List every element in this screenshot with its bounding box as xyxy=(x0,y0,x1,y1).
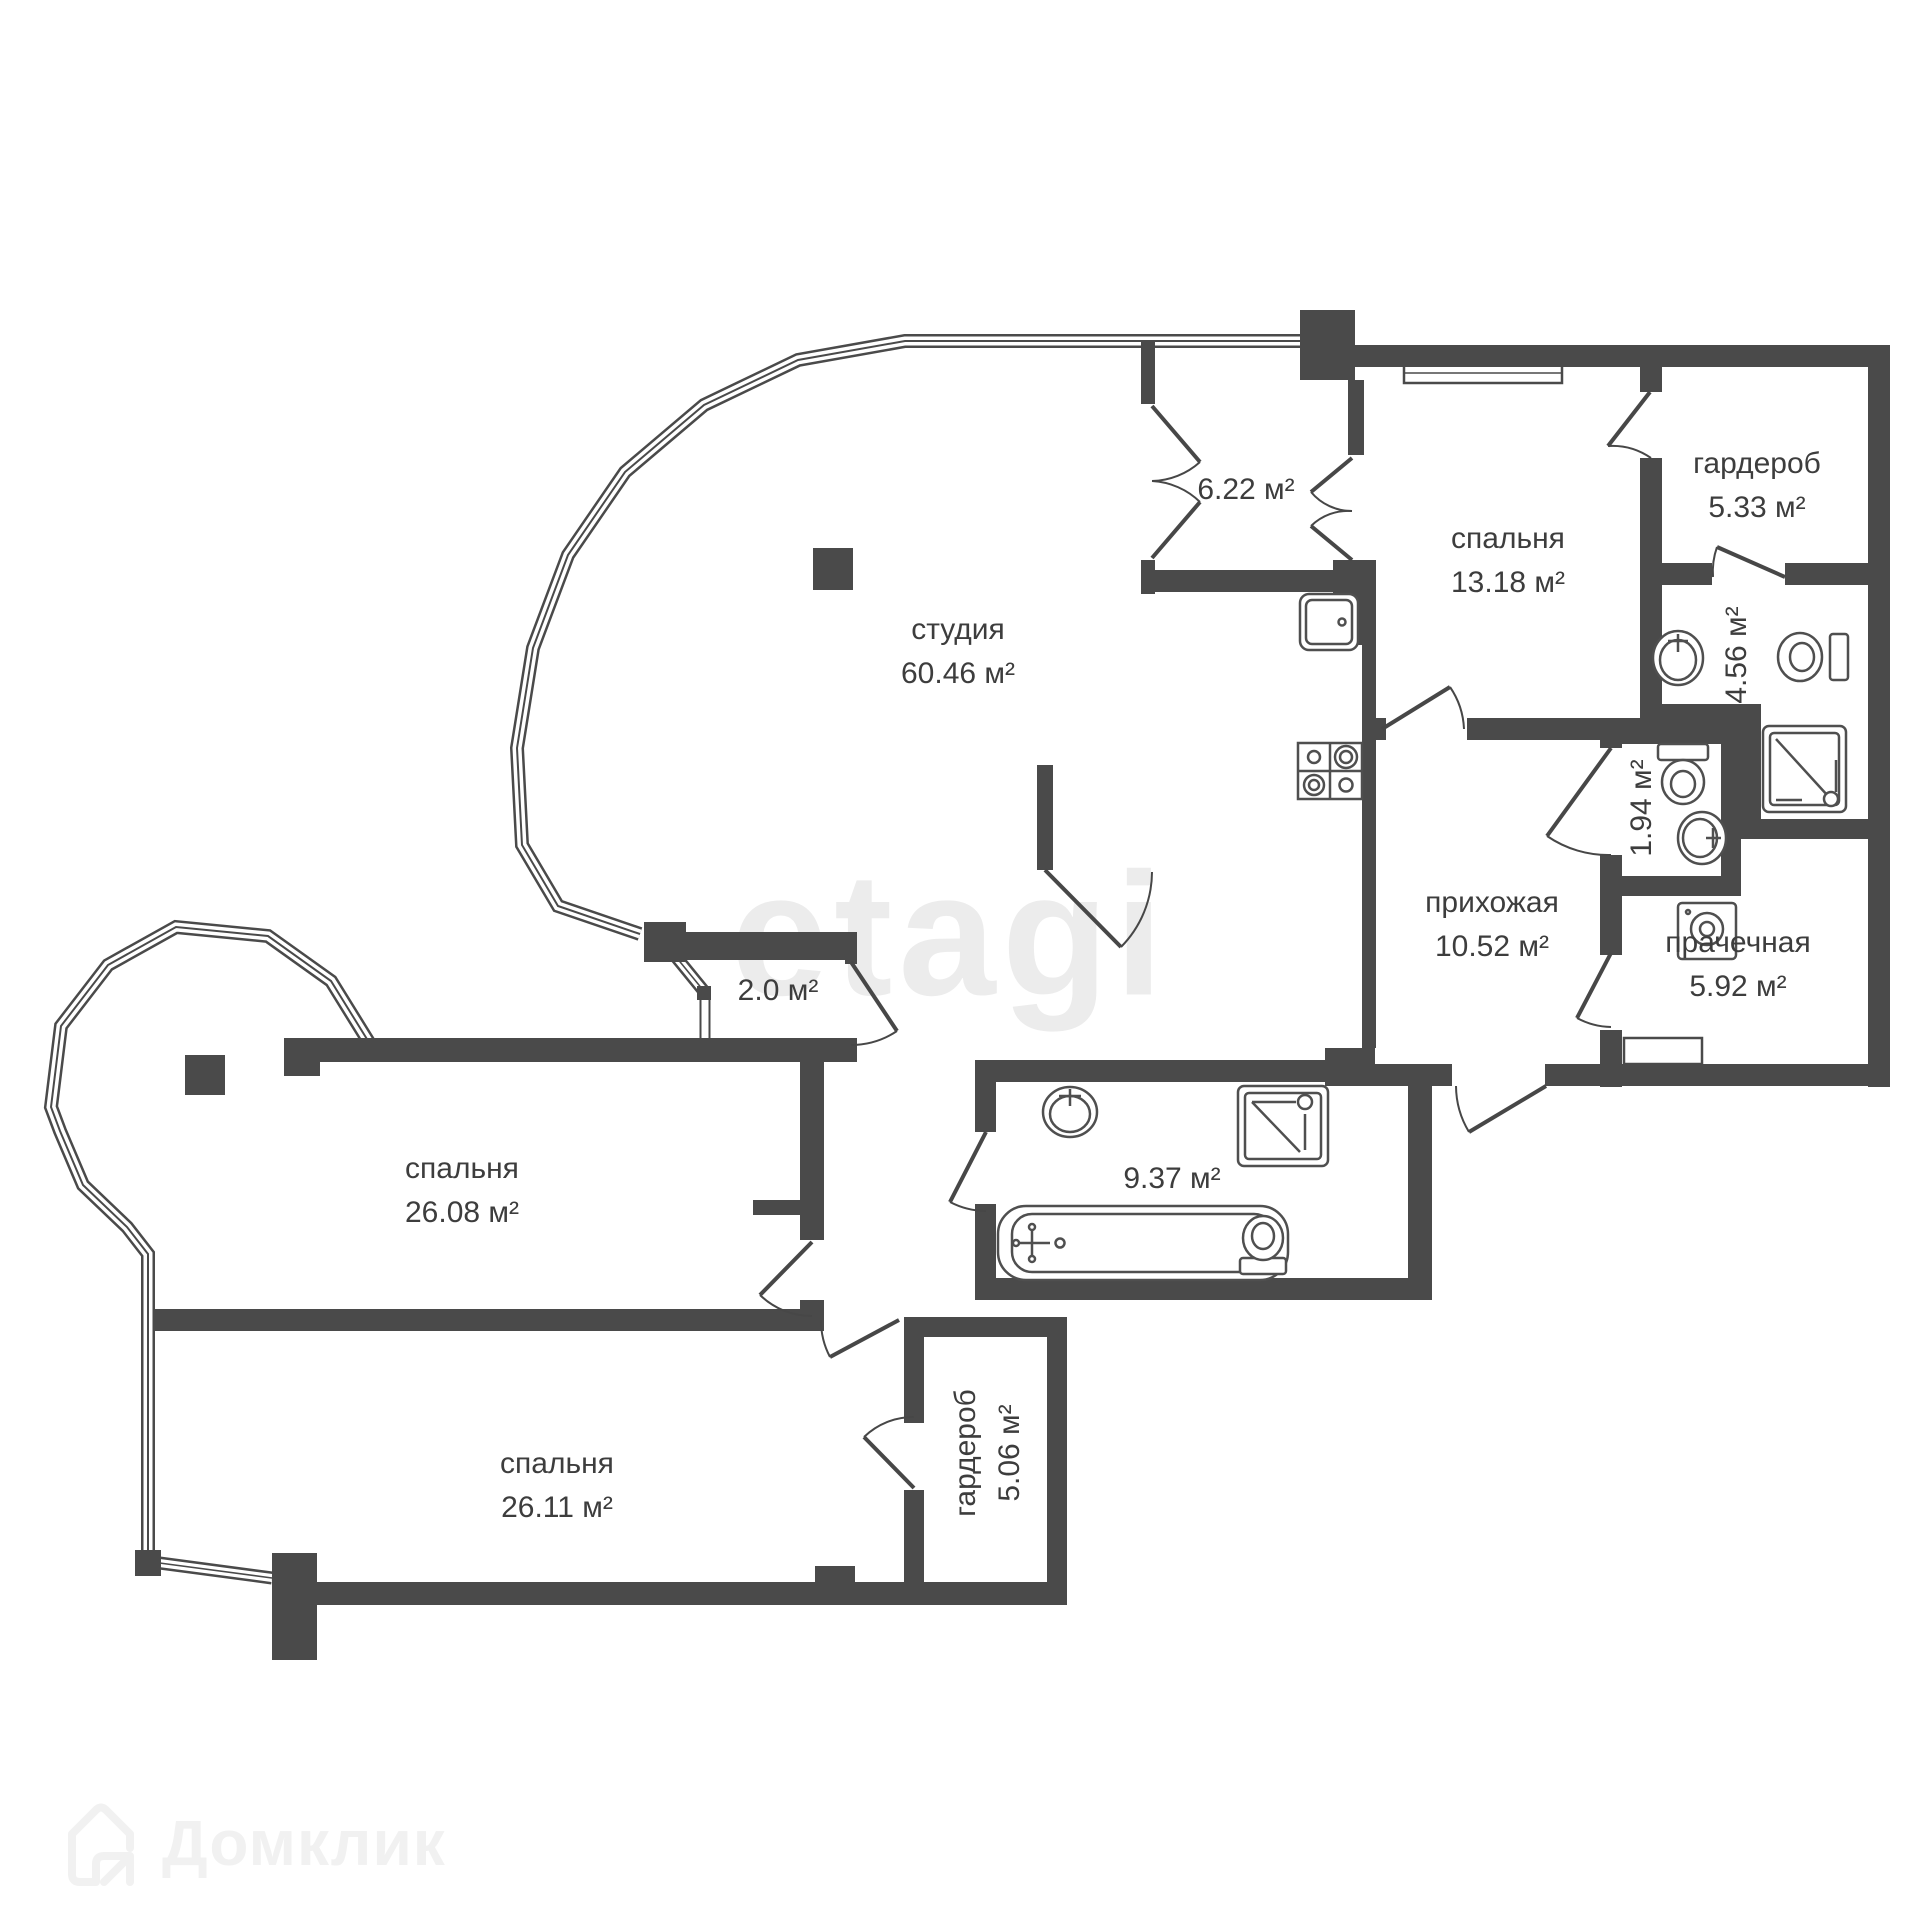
room-area: 5.06 м² xyxy=(988,1389,1032,1517)
toilet-icon xyxy=(1658,744,1708,804)
room-name: прачечная xyxy=(1665,921,1810,965)
room-area: 1.94 м² xyxy=(1620,759,1664,856)
room-area: 9.37 м² xyxy=(1123,1157,1220,1201)
room-area: 2.0 м² xyxy=(738,969,819,1013)
column-studio xyxy=(813,548,853,590)
shower-icon xyxy=(1763,726,1846,812)
door-wardrobe-bottom xyxy=(864,1417,914,1488)
door-bedroom-top-right xyxy=(1382,687,1464,729)
room-label-balcony-small: 2.0 м² xyxy=(738,969,819,1013)
door-bathroom-small xyxy=(1713,547,1785,577)
room-label-wardrobe-top: гардероб 5.33 м² xyxy=(1693,442,1821,530)
toilet-icon xyxy=(1778,633,1848,681)
room-area: 60.46 м² xyxy=(901,652,1015,696)
room-name: гардероб xyxy=(944,1389,988,1517)
bedroom-left-bay-window xyxy=(51,927,370,1578)
door-entrance xyxy=(1456,1086,1546,1132)
room-name: спальня xyxy=(405,1147,519,1191)
shower-icon xyxy=(1238,1086,1328,1166)
room-name: студия xyxy=(901,608,1015,652)
room-label-bedroom-bottom: спальня 26.11 м² xyxy=(500,1442,614,1530)
door-bedroom-bottom xyxy=(821,1320,899,1357)
room-area: 10.52 м² xyxy=(1425,925,1559,969)
washbasin-icon xyxy=(1678,812,1726,864)
kitchen-sink-icon xyxy=(1300,594,1358,650)
domclick-logo: Домклик xyxy=(58,1798,446,1888)
room-label-bedroom-top-right: спальня 13.18 м² xyxy=(1451,517,1565,605)
room-name: спальня xyxy=(500,1442,614,1486)
room-area: 6.22 м² xyxy=(1197,468,1294,512)
washbasin-icon xyxy=(1653,631,1703,685)
room-label-bedroom-left: спальня 26.08 м² xyxy=(405,1147,519,1235)
laundry-shaft xyxy=(1624,1038,1702,1064)
room-name: прихожая xyxy=(1425,881,1559,925)
door-bathroom-main xyxy=(950,1132,986,1211)
washbasin-icon xyxy=(1043,1087,1097,1137)
room-label-bathroom-small: 4.56 м² xyxy=(1715,606,1759,703)
stove-icon xyxy=(1298,743,1362,799)
floor-plan-drawing xyxy=(0,0,1920,1920)
room-name: спальня xyxy=(1451,517,1565,561)
room-label-laundry: прачечная 5.92 м² xyxy=(1665,921,1810,1009)
room-name: гардероб xyxy=(1693,442,1821,486)
room-label-balcony-top: 6.22 м² xyxy=(1197,468,1294,512)
column-bay xyxy=(185,1055,225,1095)
room-label-hallway: прихожая 10.52 м² xyxy=(1425,881,1559,969)
door-wc xyxy=(1547,748,1611,855)
room-area: 26.08 м² xyxy=(405,1191,519,1235)
room-label-studio: студия 60.46 м² xyxy=(901,608,1015,696)
room-area: 5.92 м² xyxy=(1665,965,1810,1009)
domclick-logo-text: Домклик xyxy=(162,1806,446,1880)
door-balcony-top-left xyxy=(1152,406,1200,558)
door-hallway-studio xyxy=(1045,870,1152,947)
room-area: 13.18 м² xyxy=(1451,561,1565,605)
room-label-wardrobe-bottom: гардероб 5.06 м² xyxy=(944,1389,1032,1517)
room-label-bathroom-main: 9.37 м² xyxy=(1123,1157,1220,1201)
door-wardrobe-top xyxy=(1608,392,1651,458)
room-label-wc: 1.94 м² xyxy=(1620,759,1664,856)
door-balcony-top-right xyxy=(1311,458,1352,560)
floor-plan-page: etagi xyxy=(0,0,1920,1920)
door-balcony-small xyxy=(851,962,897,1045)
door-laundry xyxy=(1577,953,1611,1027)
room-area: 4.56 м² xyxy=(1715,606,1759,703)
room-area: 5.33 м² xyxy=(1693,486,1821,530)
domclick-house-icon xyxy=(58,1798,144,1888)
toilet-icon xyxy=(1240,1216,1286,1274)
room-area: 26.11 м² xyxy=(500,1486,614,1530)
